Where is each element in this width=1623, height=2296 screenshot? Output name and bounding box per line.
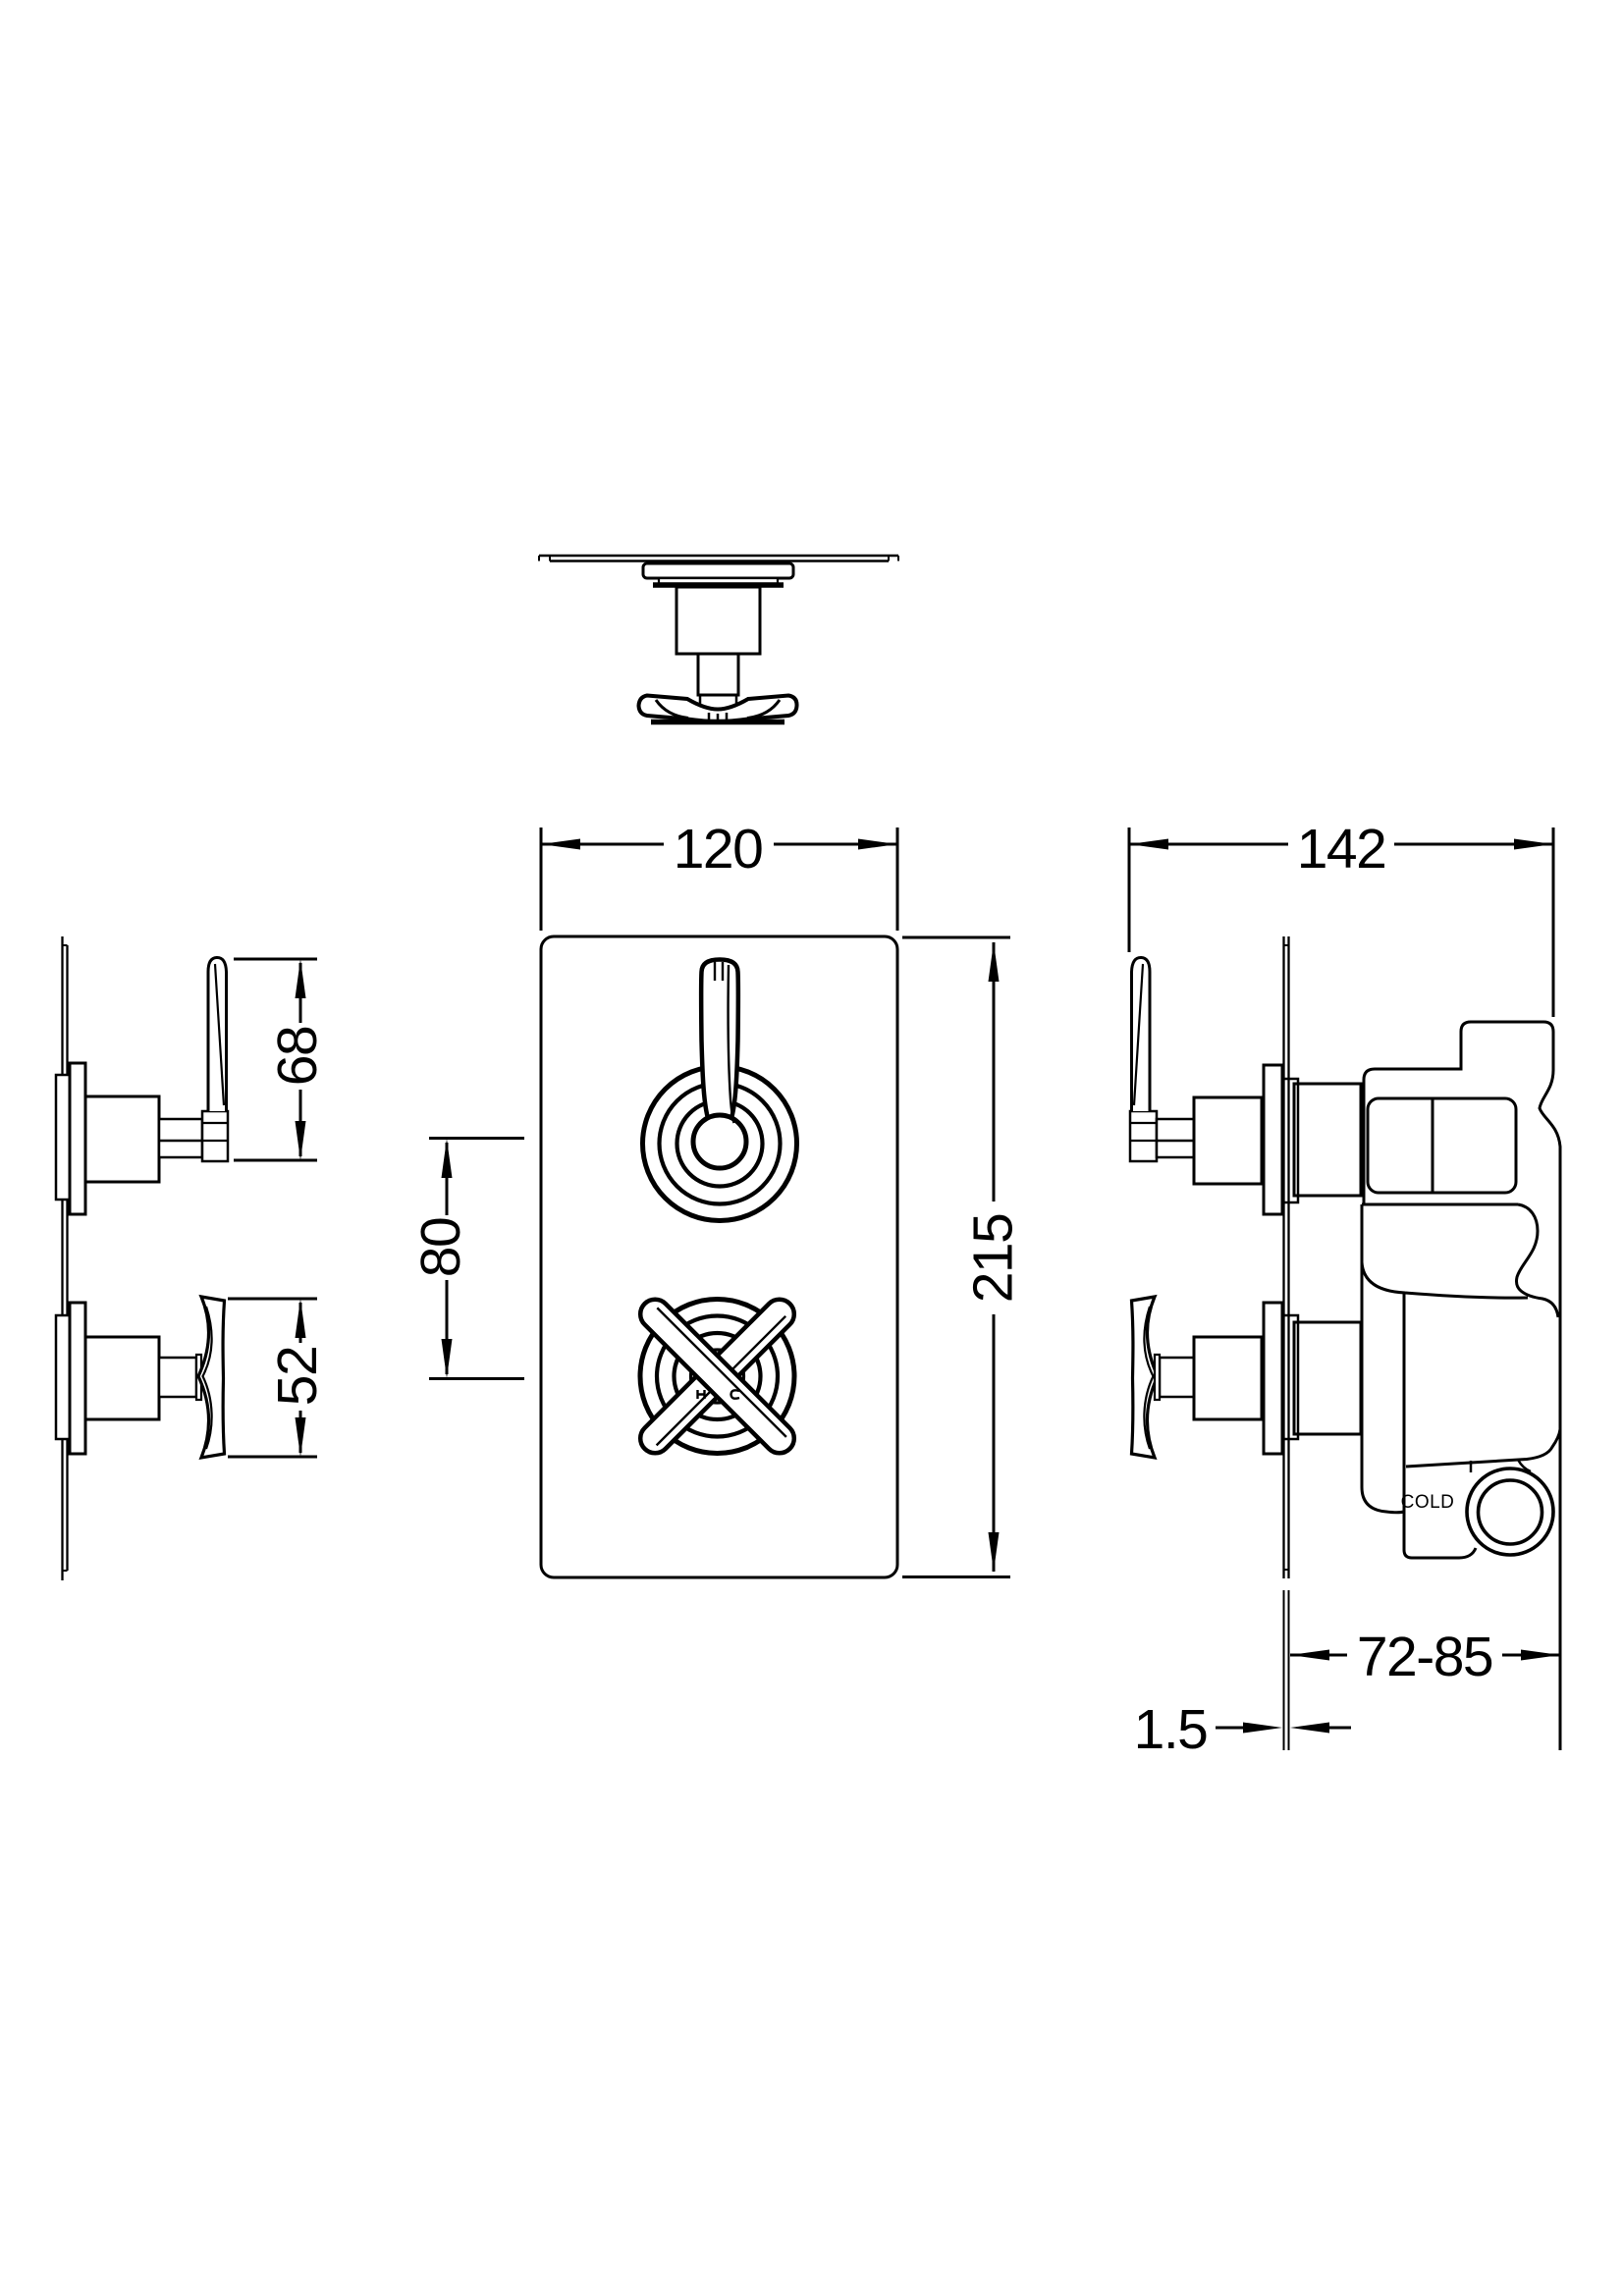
- svg-text:120: 120: [674, 818, 763, 881]
- svg-text:72-85: 72-85: [1357, 1626, 1492, 1688]
- svg-text:142: 142: [1297, 818, 1386, 881]
- svg-text:68: 68: [266, 1027, 329, 1086]
- svg-text:215: 215: [962, 1214, 1025, 1304]
- svg-text:COLD: COLD: [1401, 1492, 1455, 1513]
- svg-text:80: 80: [409, 1218, 472, 1277]
- svg-text:52: 52: [266, 1347, 329, 1406]
- svg-text:1.5: 1.5: [1134, 1698, 1208, 1761]
